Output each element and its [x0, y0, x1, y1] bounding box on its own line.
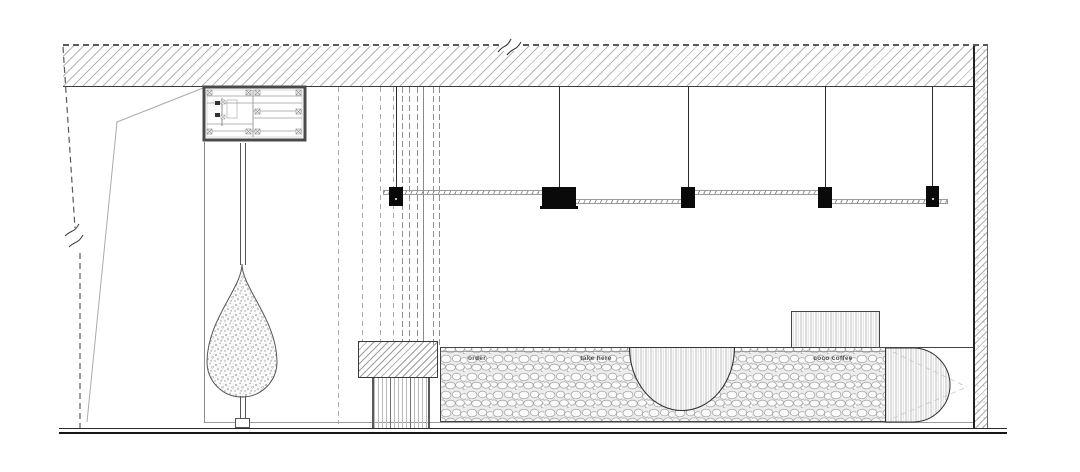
curtain-dashed-line — [338, 87, 339, 424]
side-table-top-hatched — [358, 341, 438, 378]
counter-rounded-end — [886, 348, 951, 422]
floor-line-upper — [59, 428, 1007, 429]
left-wall-dashed-line — [63, 47, 75, 228]
suspended-rail-segment — [383, 190, 546, 195]
pendant-rod — [932, 86, 933, 186]
pendant-light-fixture — [926, 186, 939, 207]
pendant-light-fixture — [389, 187, 403, 206]
curtain-dashed-line — [433, 87, 434, 345]
counter-label-coco-coffee: coco coffee — [798, 356, 868, 363]
counter-label-take-here: take here — [566, 356, 626, 363]
pendant-light-fixture — [542, 187, 576, 206]
pendant-rod — [688, 86, 689, 187]
curtain-dashed-line — [417, 87, 418, 341]
suspended-rail-segment — [687, 190, 826, 195]
pendant-lamp-dot — [932, 198, 934, 200]
curtain-edge-line — [423, 87, 424, 341]
side-table-base — [372, 378, 430, 428]
left-wall-lines — [55, 40, 220, 440]
counter-assembly — [440, 300, 975, 430]
curtain-dashed-line — [380, 87, 381, 341]
floor-line-lower — [59, 432, 1007, 434]
pendant-rod — [396, 86, 397, 187]
curtain-dashed-line — [402, 87, 403, 341]
wall-cabinet — [202, 85, 307, 143]
pendant-light-baseplate — [540, 206, 578, 209]
teardrop-shape — [207, 264, 277, 397]
wall-corner-diagonal-line — [87, 88, 203, 422]
pendant-rod — [559, 86, 560, 187]
pendant-lamp-dot — [395, 198, 397, 200]
teardrop-hanger-rod — [240, 143, 246, 265]
curtain-dashed-line — [393, 87, 394, 341]
elevation-drawing: order take here coco coffee — [0, 0, 1080, 472]
side-table-base-grain-line — [390, 378, 391, 428]
teardrop-lower-rod — [240, 396, 246, 418]
right-wall-column-hatched — [973, 46, 988, 429]
side-table-base-grain-line — [410, 378, 411, 428]
pendant-light-fixture — [818, 187, 832, 208]
counter-label-order: order — [452, 356, 502, 363]
break-mark-left — [65, 224, 79, 236]
curtain-dashed-line — [409, 87, 410, 341]
pendant-light-fixture — [681, 187, 695, 208]
counter-top-box — [792, 312, 880, 348]
teardrop-floor-base — [235, 418, 250, 428]
pendant-rod — [825, 86, 826, 187]
break-mark-top — [494, 31, 526, 61]
break-mark-left — [69, 235, 83, 247]
teardrop-sculpture — [204, 262, 280, 400]
curtain-dashed-line — [362, 87, 363, 341]
